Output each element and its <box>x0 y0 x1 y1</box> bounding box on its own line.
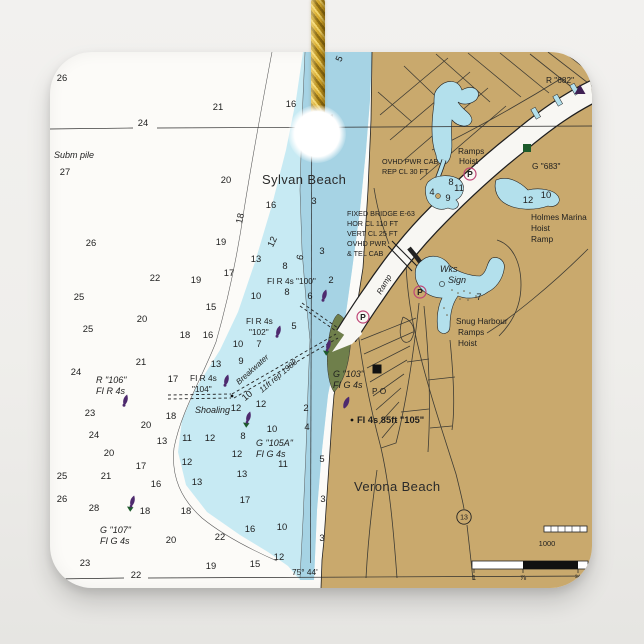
lighted-buoy-green-icon <box>127 495 136 512</box>
map-label: Sylvan Beach <box>262 172 346 187</box>
post-office-icon <box>373 365 382 374</box>
depth-sounding: 9 <box>238 355 243 366</box>
map-label: Ramp <box>531 234 554 244</box>
depth-sounding: 20 <box>141 419 151 430</box>
map-label: Wks <box>440 264 458 274</box>
depth-sounding: 13 <box>157 435 167 446</box>
depth-sounding: 15 <box>250 558 260 569</box>
map-label: R "682" <box>546 75 574 85</box>
parking-letter: P <box>360 312 366 322</box>
depth-sounding: 12 <box>274 551 284 562</box>
depth-sounding: 22 <box>150 272 160 283</box>
map-label: G "105A" <box>256 438 294 448</box>
map-label: "102" <box>249 327 269 337</box>
map-label: G "107" <box>100 525 132 535</box>
depth-sounding: 11 <box>278 458 288 469</box>
map-label: & TEL CAB <box>347 249 384 258</box>
depth-sounding: 16 <box>245 523 255 534</box>
depth-sounding: 13 <box>211 358 221 369</box>
depth-sounding: 20 <box>104 447 114 458</box>
depth-sounding: 16 <box>286 98 296 109</box>
depth-sounding: 8 <box>240 430 245 441</box>
depth-sounding: 7 <box>256 338 261 349</box>
latitude-line <box>56 578 124 579</box>
depth-sounding: 26 <box>57 493 67 504</box>
depth-sounding: 17 <box>224 267 234 278</box>
parking-letter: P <box>417 287 423 297</box>
depth-sounding: 11 <box>454 182 464 193</box>
depth-sounding: 3 <box>320 493 325 504</box>
depth-sounding: 17 <box>240 494 250 505</box>
map-label: HOR CL 110 FT <box>347 219 399 228</box>
depth-sounding: 25 <box>74 291 84 302</box>
latitude-line <box>50 128 133 129</box>
mile-scale-fill <box>523 561 578 569</box>
map-label: FI R 4s "100" <box>267 276 316 286</box>
depth-sounding: 13 <box>237 468 247 479</box>
depth-sounding: 24 <box>89 429 99 440</box>
depth-sounding: 16 <box>151 478 161 489</box>
depth-sounding: 18 <box>140 505 150 516</box>
depth-sounding: 10 <box>267 423 277 434</box>
depth-sounding: 26 <box>86 237 96 248</box>
depth-sounding: 25 <box>83 323 93 334</box>
depth-sounding: 12 <box>205 432 215 443</box>
map-label: REP CL 30 FT <box>382 167 429 176</box>
route-number: 13 <box>460 515 468 522</box>
depth-sounding: 16 <box>266 199 276 210</box>
depth-sounding: 12 <box>232 448 242 459</box>
depth-sounding: 20 <box>166 534 176 545</box>
depth-sounding: 5 <box>319 453 324 464</box>
depth-sounding: 23 <box>85 407 95 418</box>
depth-sounding: 10 <box>251 290 261 301</box>
depth-sounding: 24 <box>138 117 148 128</box>
depth-sounding: 20 <box>137 313 147 324</box>
depth-sounding: 19 <box>206 560 216 571</box>
map-label: OVHD PWR CAB <box>382 157 439 166</box>
mile-scale-tick-label: 1 <box>472 573 476 582</box>
depth-sounding: 12 <box>231 402 241 413</box>
depth-sounding: 26 <box>57 72 67 83</box>
map-label: Subm pile <box>54 150 94 160</box>
map-label: FI G 4s <box>100 536 130 546</box>
ornament-photo: PPP13 2621162427201632619138322191721086… <box>0 0 644 644</box>
depth-sounding: 22 <box>215 531 225 542</box>
depth-sounding: 17 <box>136 460 146 471</box>
map-label: FI 4s 85ft "105" <box>357 415 424 425</box>
map-label: OVHD PWR <box>347 239 387 248</box>
map-label: Ramps <box>458 327 484 337</box>
map-label: Holmes Marina <box>531 212 587 222</box>
depth-sounding: 8 <box>448 176 453 187</box>
depth-sounding: 2 <box>328 274 333 285</box>
yards-scale-label: 1000 <box>539 539 556 548</box>
depth-sounding: 19 <box>191 274 201 285</box>
map-label: VERT CL 25 FT <box>347 229 398 238</box>
depth-sounding: 18 <box>180 329 190 340</box>
depth-sounding: 3 <box>319 532 324 543</box>
depth-sounding: 16 <box>203 329 213 340</box>
depth-sounding: 18 <box>181 505 191 516</box>
map-label: Hoist <box>458 338 478 348</box>
map-label: FI R 4s <box>246 316 273 326</box>
map-label: G "683" <box>532 161 561 171</box>
depth-sounding: 4 <box>429 186 434 197</box>
map-label: Verona Beach <box>354 479 440 494</box>
map-label: Snug Harbour <box>456 316 508 326</box>
depth-sounding: 2 <box>303 402 308 413</box>
depth-sounding: 5 <box>291 320 296 331</box>
pond-islet <box>436 194 441 199</box>
depth-sounding: 12 <box>256 398 266 409</box>
depth-sounding: 12 <box>523 194 533 205</box>
map-label: FI G 4s <box>333 380 363 390</box>
depth-sounding: 12 <box>182 456 192 467</box>
depth-sounding: 13 <box>251 253 261 264</box>
map-label: Sign <box>448 275 466 285</box>
depth-sounding: 20 <box>221 174 231 185</box>
depth-sounding: 18 <box>166 410 176 421</box>
depth-sounding: 18 <box>233 212 246 224</box>
map-label: G "103" <box>333 369 365 379</box>
depth-sounding: 10 <box>277 521 287 532</box>
map-label: 75° 44' <box>292 567 318 577</box>
map-label: FI G 4s <box>256 449 286 459</box>
depth-sounding: 21 <box>101 470 111 481</box>
depth-sounding: 10 <box>541 189 551 200</box>
yards-scale-bar <box>544 526 587 532</box>
map-label: "104" <box>192 384 212 394</box>
position-dot <box>351 419 354 422</box>
depth-sounding: 27 <box>60 166 70 177</box>
depth-sounding: 6 <box>307 290 312 301</box>
daybeacon-square-icon <box>523 144 531 152</box>
depth-sounding: 7 <box>476 291 481 302</box>
depth-sounding: 17 <box>168 373 178 384</box>
map-label: Hoist <box>459 156 479 166</box>
map-label: Shoaling <box>195 405 230 415</box>
depth-sounding: 8 <box>284 286 289 297</box>
depth-sounding: 15 <box>206 301 216 312</box>
depth-sounding: 8 <box>282 260 287 271</box>
position-dot <box>231 395 234 398</box>
map-label: P O <box>372 386 387 396</box>
depth-sounding: 9 <box>445 192 450 203</box>
depth-sounding: 4 <box>304 421 309 432</box>
parking-letter: P <box>467 169 473 179</box>
depth-sounding: 25 <box>57 470 67 481</box>
mile-scale-tick-label: ⅞ <box>520 573 527 582</box>
depth-sounding: 23 <box>80 557 90 568</box>
mile-scale-tick-label: ¾ <box>575 573 582 582</box>
depth-sounding: 10 <box>233 338 243 349</box>
depth-sounding: 21 <box>136 356 146 367</box>
depth-sounding: 24 <box>71 366 81 377</box>
map-label: R "106" <box>96 375 127 385</box>
depth-sounding: 3 <box>319 245 324 256</box>
hanger-hole <box>288 105 346 163</box>
map-label: FI R 4s <box>96 386 126 396</box>
map-label: Ramps <box>458 146 484 156</box>
depth-sounding: 13 <box>192 476 202 487</box>
depth-sounding: 21 <box>213 101 223 112</box>
depth-sounding: 22 <box>131 569 141 580</box>
depth-sounding: 19 <box>216 236 226 247</box>
ribbon-cord <box>311 0 325 122</box>
depth-sounding: 28 <box>89 502 99 513</box>
map-label: FI R 4s <box>190 373 217 383</box>
depth-sounding: 11 <box>182 432 192 443</box>
map-label: Hoist <box>531 223 551 233</box>
depth-sounding: 3 <box>311 195 316 206</box>
map-label: FIXED BRIDGE E-63 <box>347 209 415 218</box>
